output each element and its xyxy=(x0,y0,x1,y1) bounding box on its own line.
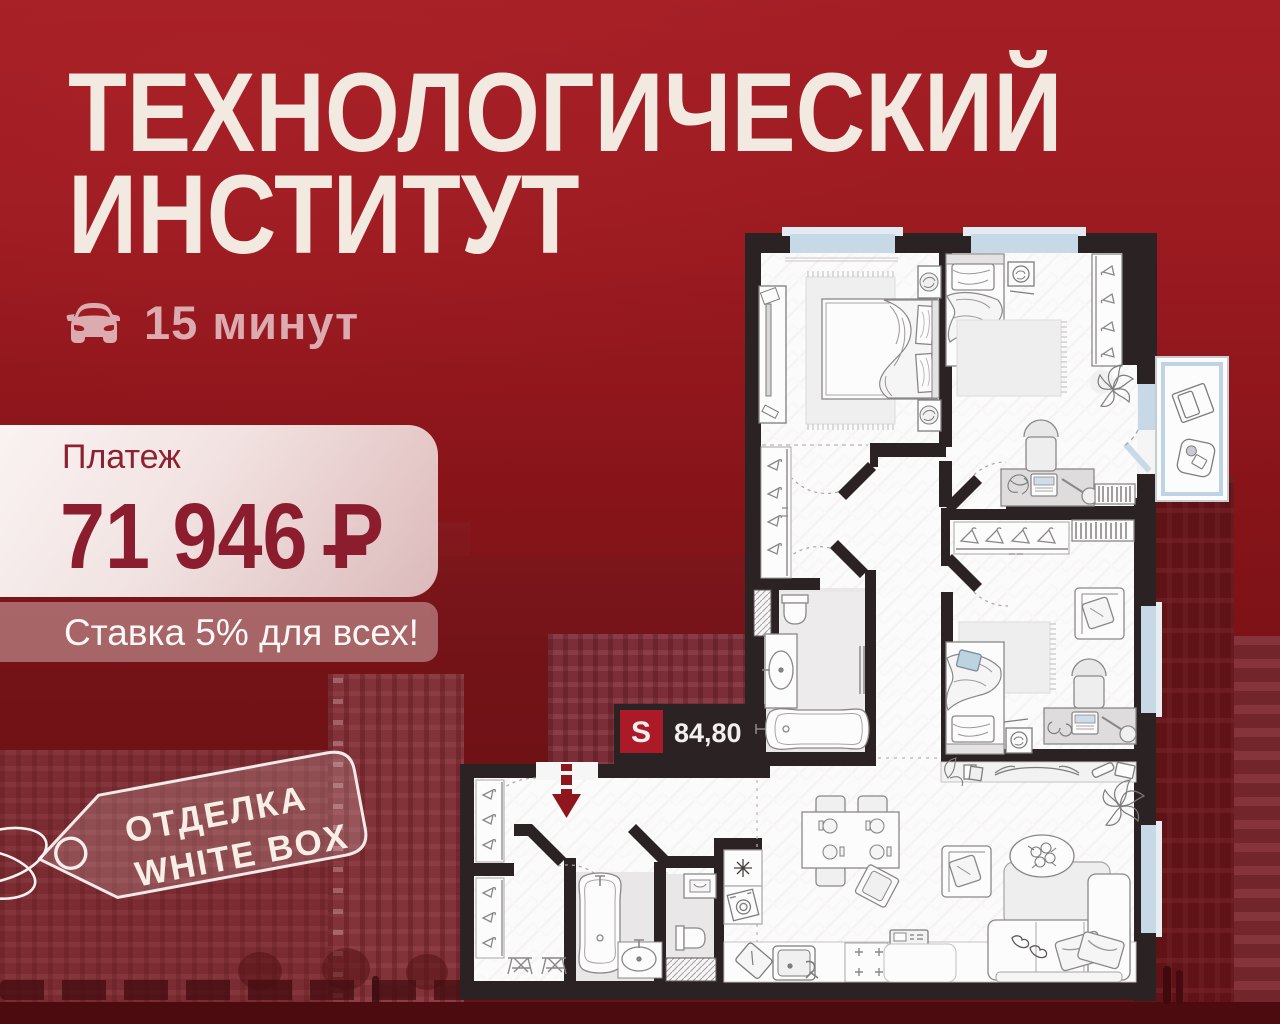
svg-text:S: S xyxy=(631,716,651,749)
svg-text:84,80: 84,80 xyxy=(674,718,742,748)
